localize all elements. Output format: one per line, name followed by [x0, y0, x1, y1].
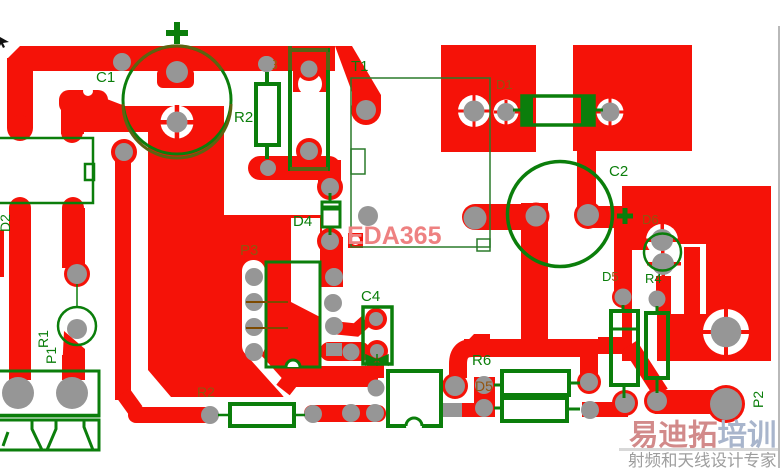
- svg-text:EDA365: EDA365: [347, 222, 442, 250]
- svg-text:R2: R2: [197, 384, 215, 400]
- svg-text:C2: C2: [609, 163, 628, 180]
- svg-text:D2: D2: [0, 214, 13, 232]
- svg-text:D5: D5: [475, 378, 493, 394]
- svg-text:P3: P3: [240, 242, 258, 259]
- svg-text:C1: C1: [96, 69, 115, 86]
- svg-text:P1: P1: [43, 347, 59, 364]
- svg-text:T1: T1: [351, 58, 369, 75]
- svg-text:R4: R4: [645, 271, 662, 286]
- svg-text:D1: D1: [496, 77, 513, 92]
- svg-text:P2: P2: [750, 391, 766, 408]
- svg-text:易迪拓培训: 易迪拓培训: [629, 418, 777, 452]
- svg-text:C4: C4: [361, 288, 380, 305]
- svg-text:R6: R6: [472, 352, 491, 369]
- svg-text:D6: D6: [642, 212, 659, 227]
- svg-text:D5: D5: [602, 269, 619, 284]
- svg-text:R2: R2: [234, 109, 253, 126]
- svg-text:射频和天线设计专家: 射频和天线设计专家: [628, 451, 777, 468]
- svg-text:R1: R1: [35, 330, 51, 348]
- svg-text:D4: D4: [293, 213, 312, 230]
